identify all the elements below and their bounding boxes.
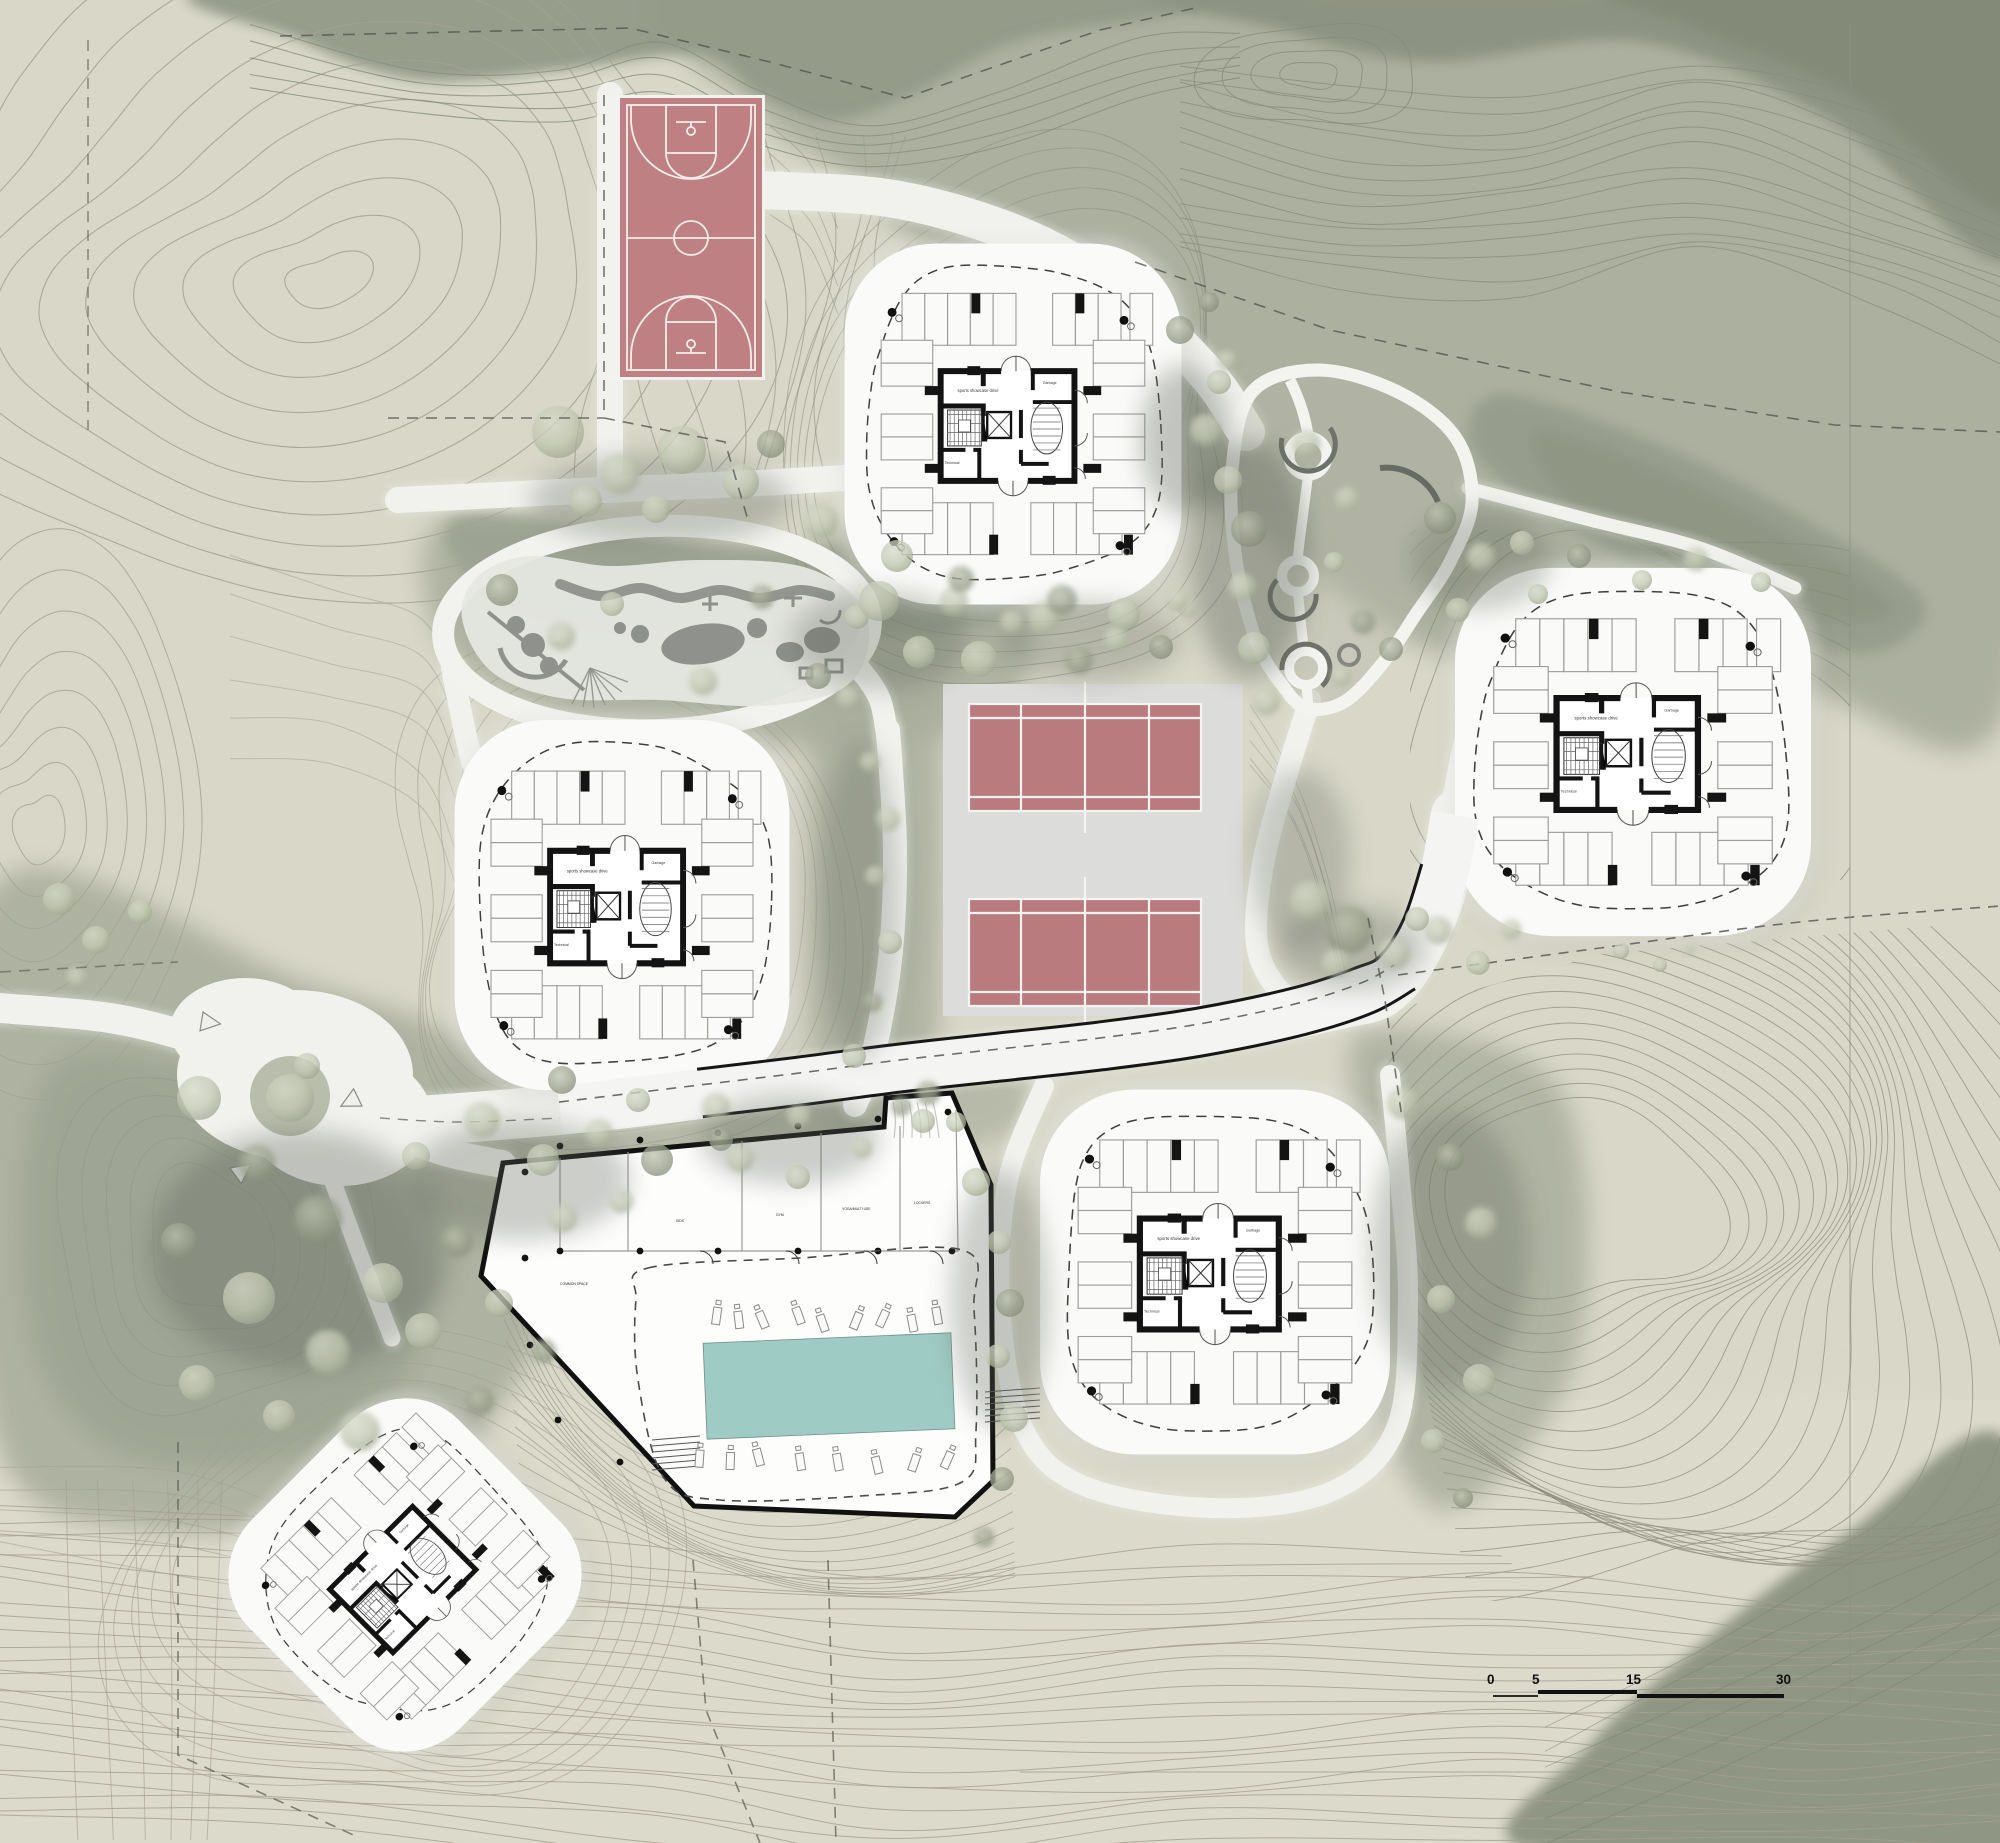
svg-text:sports showcase drive: sports showcase drive	[567, 868, 608, 873]
svg-text:YOGA/MULTI USE: YOGA/MULTI USE	[842, 1207, 871, 1211]
svg-text:5: 5	[1532, 1672, 1540, 1687]
svg-text:Garbage: Garbage	[652, 861, 666, 865]
svg-text:Technical: Technical	[554, 943, 569, 947]
svg-text:0: 0	[1487, 1672, 1495, 1687]
svg-text:30: 30	[1776, 1672, 1791, 1687]
svg-text:GYM: GYM	[776, 1213, 784, 1217]
svg-text:sports showcase drive: sports showcase drive	[1574, 716, 1618, 721]
svg-text:KIDS: KIDS	[676, 1219, 685, 1223]
svg-text:Technical: Technical	[1561, 790, 1577, 794]
svg-text:Garbage: Garbage	[1664, 708, 1679, 712]
svg-text:Garbage: Garbage	[1246, 1229, 1260, 1233]
svg-text:Garbage: Garbage	[1043, 381, 1057, 385]
svg-text:sports showcase drive: sports showcase drive	[1157, 1236, 1200, 1241]
svg-text:Technical: Technical	[1144, 1309, 1160, 1313]
svg-text:COMMON SPACE: COMMON SPACE	[560, 1282, 589, 1286]
svg-text:sports showcase drive: sports showcase drive	[958, 388, 1000, 393]
svg-text:15: 15	[1626, 1672, 1642, 1687]
svg-text:LOCKERS: LOCKERS	[914, 1201, 931, 1205]
svg-text:Technical: Technical	[945, 461, 960, 465]
